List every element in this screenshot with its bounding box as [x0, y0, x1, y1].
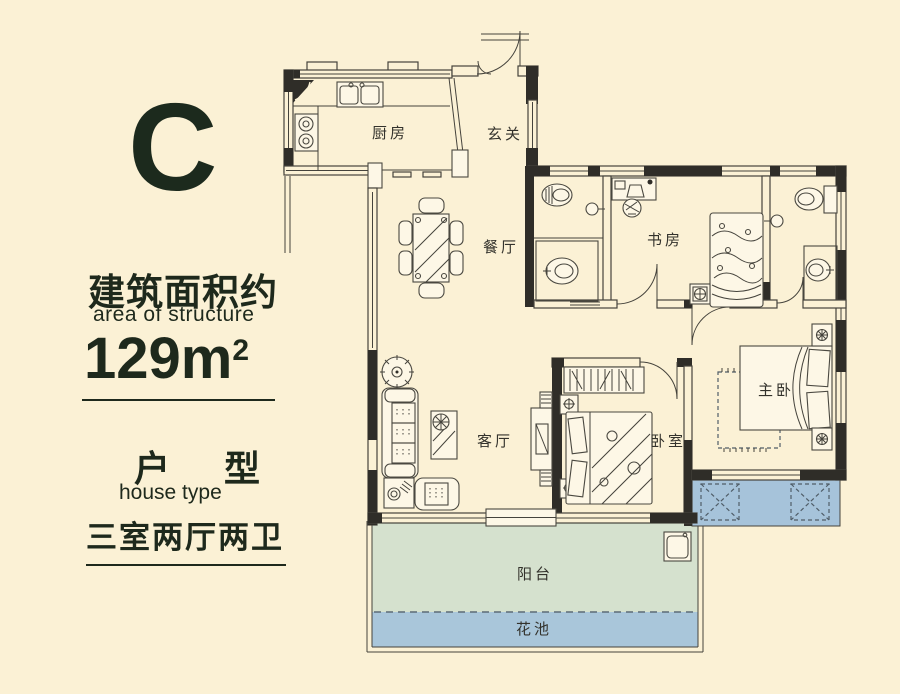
room-label-master-bedroom: 主卧	[758, 382, 794, 399]
side-table	[384, 478, 414, 508]
room-label-balcony: 阳台	[517, 566, 553, 583]
terrace-area	[692, 477, 840, 526]
nightstand	[812, 428, 832, 450]
south-wall	[368, 509, 697, 526]
room-label-living: 客厅	[477, 433, 513, 450]
bathroom2-door-arc	[777, 277, 803, 303]
wash-basin	[543, 258, 578, 284]
living-west-wall	[368, 188, 377, 525]
plant	[380, 355, 414, 389]
tv-cabinet	[531, 392, 552, 486]
room-label-study: 书房	[647, 232, 683, 249]
nightstand	[812, 324, 832, 346]
dining-set	[399, 198, 463, 298]
bathroom-2	[764, 186, 837, 303]
master-door	[692, 307, 730, 345]
kitchen-sink	[337, 82, 383, 107]
dining-table	[413, 214, 449, 282]
floor-plan: 厨房 玄关 餐厅 书房 客厅 卧室 主卧 阳台 花池	[0, 0, 900, 694]
room-label-kitchen: 厨房	[372, 125, 408, 142]
study-door-arc	[617, 264, 657, 304]
stove	[295, 114, 318, 151]
bedroom-door-arc	[640, 362, 677, 399]
wash-basin	[806, 259, 834, 281]
floor-unit	[690, 284, 710, 304]
desk-chair	[623, 199, 641, 217]
master-bedroom	[692, 324, 846, 480]
double-bed	[566, 412, 652, 504]
nightstand	[560, 395, 578, 414]
room-label-flower-bed: 花池	[516, 621, 552, 638]
washing-machine	[664, 532, 691, 561]
study	[612, 178, 763, 307]
toilet	[542, 184, 572, 206]
wardrobe	[564, 367, 644, 393]
room-label-dining: 餐厅	[483, 239, 519, 256]
coffee-table	[431, 411, 457, 459]
sofa	[382, 388, 418, 478]
bedroom-furniture	[560, 367, 652, 504]
bathroom-1	[534, 184, 605, 305]
single-bed	[710, 213, 763, 307]
room-label-bedroom: 卧室	[650, 433, 686, 450]
living-furniture	[380, 355, 552, 510]
entry-door-arc	[477, 31, 520, 74]
desk	[612, 178, 656, 200]
toilet	[795, 186, 837, 213]
room-label-entry: 玄关	[487, 126, 523, 143]
shower-head	[586, 203, 605, 215]
lounge-chair	[415, 478, 459, 510]
